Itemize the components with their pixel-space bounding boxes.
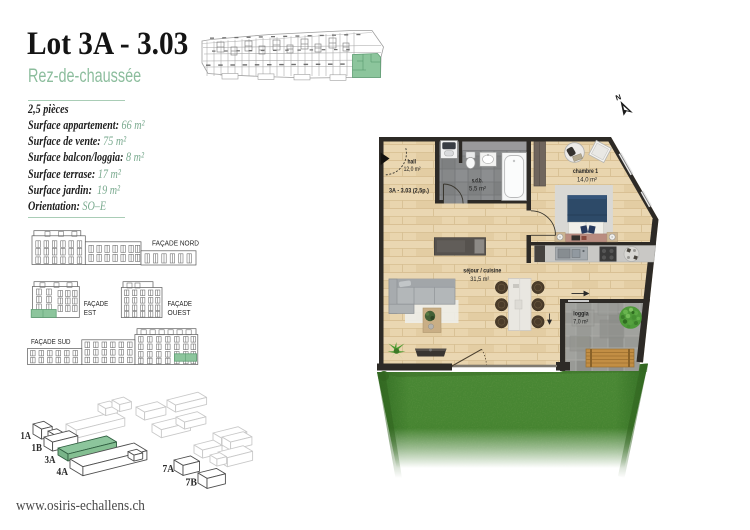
svg-text:FAÇADE SUD: FAÇADE SUD — [31, 337, 71, 346]
svg-text:FAÇADE NORD: FAÇADE NORD — [152, 239, 199, 248]
svg-text:chambre 1: chambre 1 — [573, 168, 598, 175]
svg-text:N: N — [614, 92, 622, 102]
svg-text:7A: 7A — [163, 463, 175, 475]
svg-text:loggia: loggia — [573, 311, 589, 318]
svg-text:hall: hall — [408, 159, 417, 166]
svg-text:s.d.b.: s.d.b. — [472, 178, 483, 185]
svg-text:7B: 7B — [186, 477, 198, 489]
svg-text:14,0 m²: 14,0 m² — [577, 177, 597, 184]
svg-text:3A - 3.03 (2,5p.): 3A - 3.03 (2,5p.) — [389, 188, 429, 195]
svg-text:EST: EST — [84, 308, 97, 317]
svg-text:3A: 3A — [45, 454, 56, 466]
svg-text:1B: 1B — [32, 442, 43, 454]
svg-text:OUEST: OUEST — [168, 308, 191, 317]
svg-text:7,0 m²: 7,0 m² — [573, 320, 588, 326]
svg-text:FAÇADE: FAÇADE — [84, 299, 109, 308]
svg-text:31,5 m²: 31,5 m² — [470, 276, 489, 283]
svg-text:séjour / cuisine: séjour / cuisine — [463, 268, 501, 275]
svg-text:4A: 4A — [57, 466, 69, 478]
svg-text:1A: 1A — [21, 430, 32, 442]
svg-text:5,5 m²: 5,5 m² — [469, 187, 486, 193]
svg-text:FAÇADE: FAÇADE — [168, 299, 193, 308]
svg-text:12,0 m²: 12,0 m² — [404, 166, 421, 173]
